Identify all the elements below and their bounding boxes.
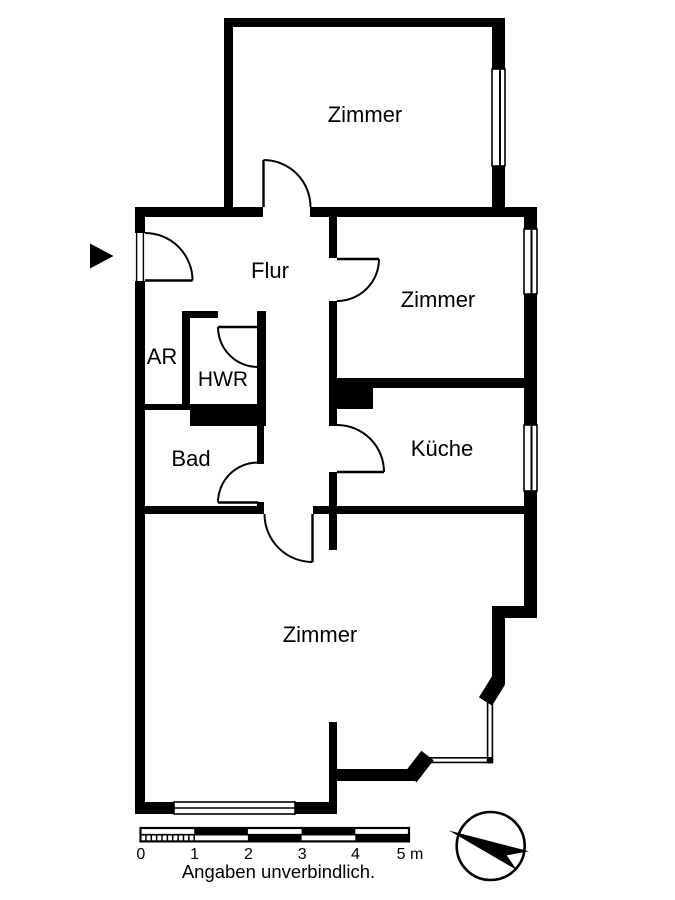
svg-text:HWR: HWR — [198, 368, 248, 391]
svg-text:0: 0 — [136, 846, 145, 863]
svg-text:Zimmer: Zimmer — [283, 622, 358, 647]
svg-text:Bad: Bad — [171, 446, 210, 471]
svg-text:AR: AR — [147, 344, 178, 369]
svg-text:5 m: 5 m — [397, 846, 424, 863]
svg-text:Küche: Küche — [411, 436, 473, 461]
svg-text:Zimmer: Zimmer — [328, 102, 403, 127]
svg-text:Flur: Flur — [251, 258, 289, 283]
svg-text:Zimmer: Zimmer — [401, 287, 476, 312]
svg-text:Angaben unverbindlich.: Angaben unverbindlich. — [182, 861, 375, 882]
